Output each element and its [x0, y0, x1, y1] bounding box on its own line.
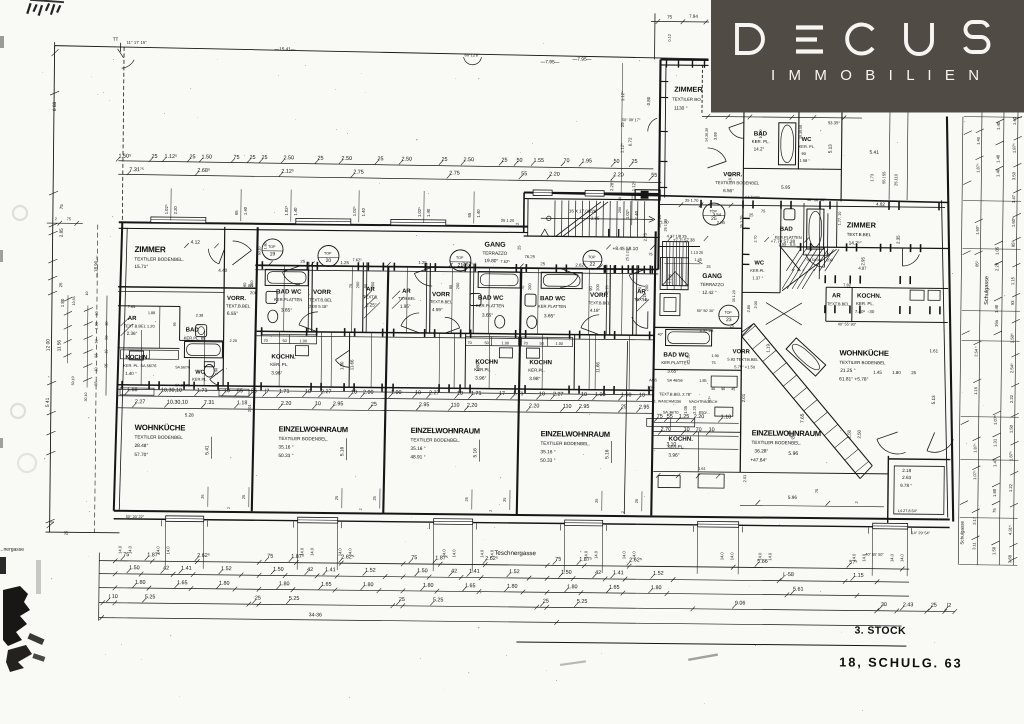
svg-text:2.43: 2.43	[903, 602, 914, 608]
svg-text:2.20: 2.20	[467, 403, 478, 409]
svg-text:VORR.: VORR.	[723, 172, 742, 178]
svg-text:40: 40	[711, 387, 715, 391]
svg-text:EINZELWOHNRAUM: EINZELWOHNRAUM	[279, 424, 348, 434]
svg-text:23: 23	[726, 317, 732, 323]
svg-text:1.52: 1.52	[653, 571, 664, 577]
svg-text:2.95: 2.95	[333, 401, 344, 407]
svg-text:2.27: 2.27	[553, 392, 564, 398]
svg-text:14.2⁵°: 14.2⁵°	[849, 240, 862, 246]
svg-text:1.80: 1.80	[567, 584, 578, 590]
svg-text:KER. PL.: KER. PL.	[799, 144, 816, 149]
svg-text:+7.74 57.38: +7.74 57.38	[771, 239, 796, 244]
svg-text:KER.PL.: KER.PL.	[528, 368, 545, 373]
svg-text:WC: WC	[195, 370, 204, 376]
svg-text:2.20: 2.20	[692, 405, 697, 414]
svg-text:KER.PLATTEN: KER.PLATTEN	[538, 304, 566, 309]
svg-text:1.41: 1.41	[181, 566, 192, 572]
svg-text:14,30,30: 14,30,30	[705, 128, 709, 142]
svg-text:2.85: 2.85	[59, 228, 64, 237]
svg-text:2.18: 2.18	[902, 468, 911, 473]
svg-text:25: 25	[373, 496, 377, 500]
svg-text:5.25: 5.25	[577, 599, 588, 605]
svg-text:95: 95	[173, 322, 177, 326]
svg-text:76.25: 76.25	[524, 254, 535, 259]
svg-text:3. STOCK: 3. STOCK	[854, 625, 906, 638]
svg-text:61.81° +5.78°: 61.81° +5.78°	[839, 376, 868, 382]
svg-text:3.50⁵: 3.50⁵	[1010, 333, 1015, 343]
svg-text:5.93 TEXT.B.BEL: 5.93 TEXT.B.BEL	[727, 357, 759, 362]
svg-text:1.61: 1.61	[698, 467, 705, 471]
svg-text:200: 200	[355, 281, 360, 289]
svg-text:5.16: 5.16	[472, 448, 478, 458]
svg-text:2.95: 2.95	[639, 404, 650, 410]
svg-text:50° 39' 17'': 50° 39' 17''	[622, 118, 641, 122]
svg-text:20: 20	[326, 258, 332, 264]
svg-text:9.78 °: 9.78 °	[900, 483, 912, 488]
svg-text:1.02⁵: 1.02⁵	[417, 207, 422, 217]
svg-text:BAD WC: BAD WC	[276, 288, 302, 295]
svg-text:1.31: 1.31	[992, 438, 997, 447]
svg-text:1.18: 1.18	[237, 400, 248, 406]
svg-text:50.33 °: 50.33 °	[278, 453, 293, 459]
svg-text:25: 25	[377, 156, 383, 162]
svg-text:25: 25	[64, 530, 69, 535]
svg-text:25: 25	[620, 122, 625, 127]
svg-text:1.58 °: 1.58 °	[799, 158, 810, 163]
svg-text:35 1.20: 35 1.20	[732, 290, 736, 302]
svg-text:4.87: 4.87	[858, 266, 867, 271]
svg-text:3.96°: 3.96°	[271, 370, 282, 376]
svg-text:10,30,10: 10,30,10	[167, 400, 188, 406]
svg-text:11° 17' 15'': 11° 17' 15''	[127, 40, 147, 45]
svg-text:25: 25	[595, 499, 599, 503]
svg-text:7.65: 7.65	[800, 413, 806, 423]
svg-text:1.40: 1.40	[361, 208, 366, 217]
svg-text:6 88: 6 88	[52, 101, 58, 111]
svg-text:50: 50	[540, 342, 544, 346]
svg-text:14.0: 14.0	[127, 545, 132, 554]
svg-text:1.80: 1.80	[363, 582, 374, 588]
svg-text:5.25: 5.25	[289, 596, 300, 602]
svg-text:75: 75	[815, 489, 819, 493]
svg-text:1.45: 1.45	[873, 370, 882, 375]
svg-text:75: 75	[711, 361, 715, 365]
svg-text:80: 80	[248, 283, 253, 288]
svg-text:14.0: 14.0	[621, 551, 626, 560]
svg-text:25: 25	[261, 155, 267, 161]
svg-text:1.25: 1.25	[340, 260, 349, 265]
svg-text:EINZELWOHNRAUM: EINZELWOHNRAUM	[411, 426, 480, 436]
svg-text:19: 19	[270, 251, 276, 257]
svg-text:—7.95—: —7.95—	[540, 59, 559, 65]
svg-text:1.80: 1.80	[507, 584, 518, 590]
svg-text:25: 25	[300, 259, 305, 264]
svg-text:KER.PL: KER.PL	[192, 377, 207, 382]
svg-text:SA 46/56: SA 46/56	[667, 379, 682, 383]
svg-text:28.48°: 28.48°	[134, 443, 148, 449]
svg-text:40° 10' 50'': 40° 10' 50''	[807, 198, 826, 202]
svg-text:KOCHN: KOCHN	[529, 359, 552, 366]
svg-text:2.35: 2.35	[896, 235, 901, 244]
svg-text:1.40: 1.40	[1012, 116, 1017, 125]
svg-text:6.55°: 6.55°	[227, 311, 238, 317]
svg-text:EINZELWOHNRAUM: EINZELWOHNRAUM	[541, 429, 610, 439]
svg-text:14.0: 14.0	[155, 546, 160, 555]
svg-text:3.11: 3.11	[971, 541, 976, 549]
svg-text:14.0: 14.0	[451, 549, 456, 558]
svg-text:1.87⁵: 1.87⁵	[975, 163, 980, 173]
svg-text:42: 42	[163, 565, 169, 571]
svg-text:SA 50/30: SA 50/30	[806, 258, 820, 262]
svg-text:70: 70	[524, 342, 528, 346]
svg-text:1.40: 1.40	[426, 208, 431, 217]
svg-text:1.50: 1.50	[129, 565, 140, 571]
svg-text:110: 110	[451, 402, 460, 408]
svg-text:4.82: 4.82	[876, 202, 885, 207]
svg-text:0.72: 0.72	[628, 137, 633, 146]
svg-text:16a: 16a	[994, 319, 999, 327]
svg-text:40°: 40°	[658, 332, 664, 336]
svg-text:KOCHN.: KOCHN.	[857, 293, 882, 300]
svg-text:25: 25	[503, 498, 507, 502]
svg-text:—15.41—: —15.41—	[275, 46, 296, 51]
svg-text:1.12⁵: 1.12⁵	[164, 154, 177, 160]
svg-text:TT: TT	[113, 37, 119, 42]
svg-text:1.65: 1.65	[321, 582, 332, 588]
svg-text:5.75° +1.50: 5.75° +1.50	[734, 364, 755, 369]
svg-text:10: 10	[315, 401, 321, 407]
svg-text:10,30,10: 10,30,10	[161, 387, 182, 393]
svg-text:2.54 ⁵: 2.54 ⁵	[973, 346, 978, 357]
svg-text:1.15: 1.15	[1010, 276, 1015, 285]
svg-text:TOP: TOP	[588, 255, 596, 259]
svg-text:10.30: 10.30	[728, 173, 732, 183]
svg-text:TEXT.B.BEL: TEXT.B.BEL	[847, 232, 872, 237]
svg-text:TERRAZZO: TERRAZZO	[700, 282, 724, 287]
svg-text:L4.27.8.54°: L4.27.8.54°	[898, 509, 918, 513]
svg-text:10: 10	[415, 390, 421, 396]
svg-text:2.63: 2.63	[902, 475, 911, 480]
svg-text:25: 25	[706, 265, 710, 269]
svg-text:25: 25	[730, 324, 734, 328]
svg-text:42: 42	[595, 570, 601, 576]
svg-text:WOHNKÜCHE: WOHNKÜCHE	[839, 348, 888, 358]
svg-text:1.12⁵: 1.12⁵	[631, 181, 636, 191]
svg-text:2.75: 2.75	[353, 169, 364, 175]
svg-text:1.80: 1.80	[992, 488, 997, 497]
svg-text:5.13: 5.13	[931, 395, 936, 404]
svg-text:25: 25	[441, 157, 447, 163]
svg-text:25: 25	[465, 497, 469, 501]
svg-text:50: 50	[485, 341, 489, 345]
svg-text:70: 70	[563, 158, 569, 164]
svg-text:KER. PL.: KER. PL.	[856, 301, 874, 306]
svg-text:12 00: 12 00	[45, 339, 51, 351]
svg-text:2.75: 2.75	[449, 170, 460, 176]
svg-text:TEXT.B.BEL: TEXT.B.BEL	[309, 297, 333, 302]
svg-text:3.65°: 3.65°	[667, 369, 678, 374]
svg-text:30: 30	[881, 602, 887, 608]
svg-text:AR: AR	[832, 293, 841, 299]
svg-text:GANG: GANG	[485, 242, 507, 249]
svg-text:2.20: 2.20	[281, 401, 292, 407]
svg-text:I M M O B I L I E N: I M M O B I L I E N	[771, 67, 984, 84]
svg-text:Schulgasse: Schulgasse	[984, 276, 990, 305]
svg-text:14.0: 14.0	[631, 551, 636, 560]
svg-text:3.98°: 3.98°	[529, 376, 540, 382]
svg-text:2.20: 2.20	[549, 172, 560, 178]
svg-text:19.80°: 19.80°	[484, 258, 498, 264]
svg-text:2.01: 2.01	[741, 393, 746, 402]
svg-text:34-36: 34-36	[309, 612, 322, 618]
svg-text:1.80: 1.80	[339, 361, 344, 370]
svg-text:75: 75	[992, 508, 997, 513]
svg-text:55: 55	[667, 414, 673, 420]
svg-text:3.99: 3.99	[713, 131, 718, 140]
svg-text:2.22: 2.22	[1009, 394, 1014, 403]
svg-text:1.77, 10: 1.77, 10	[838, 212, 842, 226]
svg-text:2: 2	[855, 501, 859, 503]
svg-text:GANG: GANG	[702, 273, 722, 280]
svg-text:2.12⁵: 2.12⁵	[281, 169, 294, 175]
svg-text:10: 10	[85, 291, 89, 295]
svg-text:2.28⁷⁵: 2.28⁷⁵	[609, 179, 614, 191]
svg-text:40° 55' 30'': 40° 55' 30''	[838, 322, 857, 326]
svg-text:3.54: 3.54	[713, 212, 722, 217]
svg-text:57.70°: 57.70°	[134, 452, 148, 458]
svg-text:200: 200	[250, 290, 258, 295]
svg-text:25: 25	[931, 603, 937, 609]
svg-text:1.98: 1.98	[214, 368, 218, 375]
svg-text:1.40: 1.40	[994, 304, 999, 313]
svg-text:1.40: 1.40	[293, 207, 298, 216]
svg-text:1.65: 1.65	[177, 580, 188, 586]
svg-text:1.15: 1.15	[853, 573, 864, 579]
svg-text:35 1.70: 35 1.70	[740, 216, 744, 229]
svg-text:4.59°: 4.59°	[432, 307, 443, 312]
svg-text:VORR: VORR	[313, 289, 331, 296]
svg-text:1. WASCHM/256: 1. WASCHM/256	[654, 399, 681, 403]
svg-text:5.61: 5.61	[793, 587, 804, 593]
svg-text:1.50⁵: 1.50⁵	[118, 153, 131, 159]
svg-text:25: 25	[335, 496, 339, 500]
svg-text:2.75: 2.75	[643, 232, 648, 241]
svg-text:11.66: 11.66	[349, 359, 354, 370]
svg-text:35.16 °: 35.16 °	[410, 446, 425, 452]
svg-text:14.0: 14.0	[583, 550, 588, 559]
svg-text:5.16: 5.16	[604, 449, 610, 459]
svg-text:7.65: 7.65	[128, 305, 135, 309]
svg-text:110: 110	[563, 404, 572, 410]
svg-text:TEXTILER BODENBEL: TEXTILER BODENBEL	[715, 180, 760, 185]
svg-text:36.28°: 36.28°	[754, 448, 768, 454]
svg-text:21.25 °: 21.25 °	[840, 368, 855, 374]
svg-text:TEXTILER BO: TEXTILER BO	[672, 97, 701, 102]
svg-text:14.0: 14.0	[309, 547, 314, 556]
svg-text:5.25: 5.25	[145, 594, 156, 600]
svg-text:2: 2	[489, 510, 493, 512]
svg-text:14.0: 14.0	[593, 550, 598, 559]
svg-text:1 80: 1 80	[60, 298, 65, 307]
svg-text:1.25: 1.25	[679, 414, 690, 420]
svg-text:KER. PL.: KER. PL.	[752, 139, 770, 144]
svg-text:200: 200	[455, 282, 460, 290]
svg-text:—7.95—: —7.95—	[572, 57, 591, 63]
svg-text:NACHTRÄGLICH: NACHTRÄGLICH	[689, 400, 718, 404]
svg-text:50,10: 50,10	[71, 376, 75, 385]
svg-text:2.15: 2.15	[605, 286, 609, 293]
svg-text:15.71°: 15.71°	[134, 264, 148, 270]
svg-text:2.20: 2.20	[173, 206, 178, 215]
svg-text:1.95: 1.95	[581, 158, 592, 164]
svg-text:A/65: A/65	[649, 378, 657, 382]
svg-text:1.95: 1.95	[647, 385, 654, 389]
svg-text:50° 50' 30'': 50° 50' 30''	[697, 309, 715, 313]
svg-text:1.15: 1.15	[973, 386, 978, 395]
svg-text:1.90: 1.90	[711, 354, 718, 358]
svg-text:25: 25	[151, 154, 157, 160]
svg-text:25: 25	[371, 402, 377, 408]
svg-text:2.00 5.18°: 2.00 5.18°	[309, 304, 329, 309]
svg-text:55: 55	[251, 388, 257, 394]
svg-text:21: 21	[458, 262, 464, 268]
svg-text:57⁵: 57⁵	[708, 396, 712, 402]
svg-text:50: 50	[613, 159, 619, 165]
svg-text:2.20: 2.20	[529, 403, 540, 409]
svg-text:4.40: 4.40	[218, 268, 227, 273]
svg-text:1.87⁵: 1.87⁵	[1012, 143, 1017, 153]
svg-text:5.13: 5.13	[828, 144, 833, 153]
svg-text:16 X 17.06/28: 16 X 17.06/28	[569, 209, 597, 214]
svg-text:1.80: 1.80	[651, 585, 662, 591]
svg-text:25 1.23: 25 1.23	[664, 219, 668, 232]
svg-text:25: 25	[58, 282, 63, 287]
svg-text:TOP: TOP	[268, 245, 276, 249]
svg-text:75: 75	[411, 555, 417, 561]
svg-text:1.60⁵: 1.60⁵	[975, 225, 980, 235]
svg-text:2.95: 2.95	[860, 256, 865, 265]
svg-text:25 1.70: 25 1.70	[685, 198, 699, 203]
svg-text:2.50: 2.50	[283, 155, 294, 161]
svg-text:50,10: 50,10	[257, 246, 261, 255]
svg-text:2.27: 2.27	[429, 390, 440, 396]
svg-text:TEXTILER BODENBEL.: TEXTILER BODENBEL.	[134, 256, 184, 262]
svg-text:2.27: 2.27	[321, 389, 332, 395]
svg-text:2.20: 2.20	[694, 414, 705, 420]
svg-text:2.54⁵: 2.54⁵	[1009, 363, 1014, 373]
svg-text:1.50: 1.50	[201, 154, 212, 160]
svg-text:1.52: 1.52	[365, 568, 376, 574]
svg-text:1.50: 1.50	[991, 546, 996, 555]
svg-text:25: 25	[255, 595, 261, 601]
svg-text:4.37 1/8: 4.37 1/8	[700, 329, 714, 333]
svg-text:7.31⁷⁵: 7.31⁷⁵	[129, 167, 144, 173]
svg-text:TEXT.B.BEL: TEXT.B.BEL	[226, 303, 251, 308]
svg-text:200: 200	[618, 207, 622, 213]
svg-text:14.0: 14.0	[299, 547, 304, 556]
svg-text:1.52: 1.52	[509, 569, 520, 575]
svg-text:200: 200	[370, 281, 375, 289]
svg-text:1.71: 1.71	[279, 389, 290, 395]
svg-text:75: 75	[667, 15, 673, 20]
svg-text:75: 75	[267, 554, 273, 560]
svg-text:ZIMMER: ZIMMER	[674, 85, 703, 94]
svg-text:10,30,50: 10,30,50	[799, 125, 803, 139]
svg-text:25: 25	[317, 156, 323, 162]
svg-text:1.40: 1.40	[976, 136, 981, 145]
svg-text:2.95: 2.95	[419, 402, 430, 408]
svg-text:VORR: VORR	[732, 349, 750, 355]
svg-text:...nergasse: ...nergasse	[0, 547, 24, 553]
svg-text:TERRAZZO: TERRAZZO	[482, 251, 507, 256]
svg-text:85⁵: 85⁵	[1011, 240, 1016, 247]
svg-text:14.0: 14.0	[165, 546, 170, 555]
svg-text:+7.7⁵ 57.38: +7.7⁵ 57.38	[673, 238, 695, 243]
svg-text:1.00: 1.00	[556, 342, 563, 346]
svg-text:85⁵: 85⁵	[974, 260, 979, 267]
svg-text:1.80: 1.80	[135, 580, 146, 586]
svg-text:2.70: 2.70	[754, 235, 758, 242]
svg-text:2.50: 2.50	[463, 157, 474, 163]
svg-text:1.40 °: 1.40 °	[125, 371, 137, 376]
svg-text:1.61: 1.61	[929, 348, 938, 353]
svg-text:1.87⁵: 1.87⁵	[972, 443, 977, 453]
svg-text:1.12⁵: 1.12⁵	[620, 143, 625, 153]
svg-text:1.65: 1.65	[465, 583, 476, 589]
svg-text:WOHNKÜCHE: WOHNKÜCHE	[135, 423, 186, 433]
svg-text:18, SCHULG. 63: 18, SCHULG. 63	[839, 654, 962, 670]
svg-text:25: 25	[189, 154, 195, 160]
svg-text:14.0: 14.0	[851, 553, 856, 562]
svg-text:1.10: 1.10	[721, 414, 732, 420]
svg-text:200: 200	[595, 283, 600, 291]
svg-text:2.68⁵: 2.68⁵	[197, 168, 210, 174]
svg-text:AR: AR	[128, 316, 137, 322]
svg-text:17: 17	[499, 391, 505, 397]
svg-text:BAD: BAD	[186, 328, 200, 334]
svg-text:1.95°: 1.95°	[400, 304, 411, 309]
svg-text:25: 25	[501, 157, 507, 163]
svg-text:14.0: 14.0	[889, 553, 894, 562]
svg-text:2.80: 2.80	[747, 305, 751, 312]
svg-text:1.50: 1.50	[417, 568, 428, 574]
svg-text:L4° 29' 54'': L4° 29' 54''	[912, 531, 931, 535]
svg-text:0.80: 0.80	[646, 96, 651, 105]
svg-text:3.96°: 3.96°	[475, 376, 486, 382]
svg-text:L-58: L-58	[783, 572, 794, 578]
svg-text:AR: AR	[402, 289, 411, 295]
svg-text:50.33 °: 50.33 °	[540, 458, 555, 464]
svg-text:1.13 25: 1.13 25	[690, 251, 703, 255]
svg-text:1.55: 1.55	[533, 158, 544, 164]
svg-text:60°12'6'': 60°12'6''	[465, 52, 480, 57]
svg-text:30: 30	[618, 197, 622, 201]
svg-text:55 | 55: 55 | 55	[881, 171, 886, 184]
svg-text:2.20: 2.20	[613, 172, 624, 178]
svg-text:WC: WC	[802, 137, 813, 143]
svg-text:SA.56/76: SA.56/76	[175, 365, 190, 369]
svg-text:2.50: 2.50	[401, 156, 412, 162]
svg-text:200: 200	[527, 283, 532, 291]
svg-text:2: 2	[621, 511, 625, 513]
svg-text:3.68: 3.68	[1007, 554, 1012, 563]
svg-text:TEXTILER BODENBEL.: TEXTILER BODENBEL.	[540, 441, 590, 447]
svg-text:1.22: 1.22	[1008, 483, 1013, 492]
svg-text:Schulgasse: Schulgasse	[959, 520, 964, 544]
svg-text:3.65°: 3.65°	[281, 307, 292, 313]
svg-text:TEXTILER BODENBEL: TEXTILER BODENBEL	[135, 434, 184, 440]
svg-text:4.31⁵: 4.31⁵	[1008, 525, 1013, 535]
